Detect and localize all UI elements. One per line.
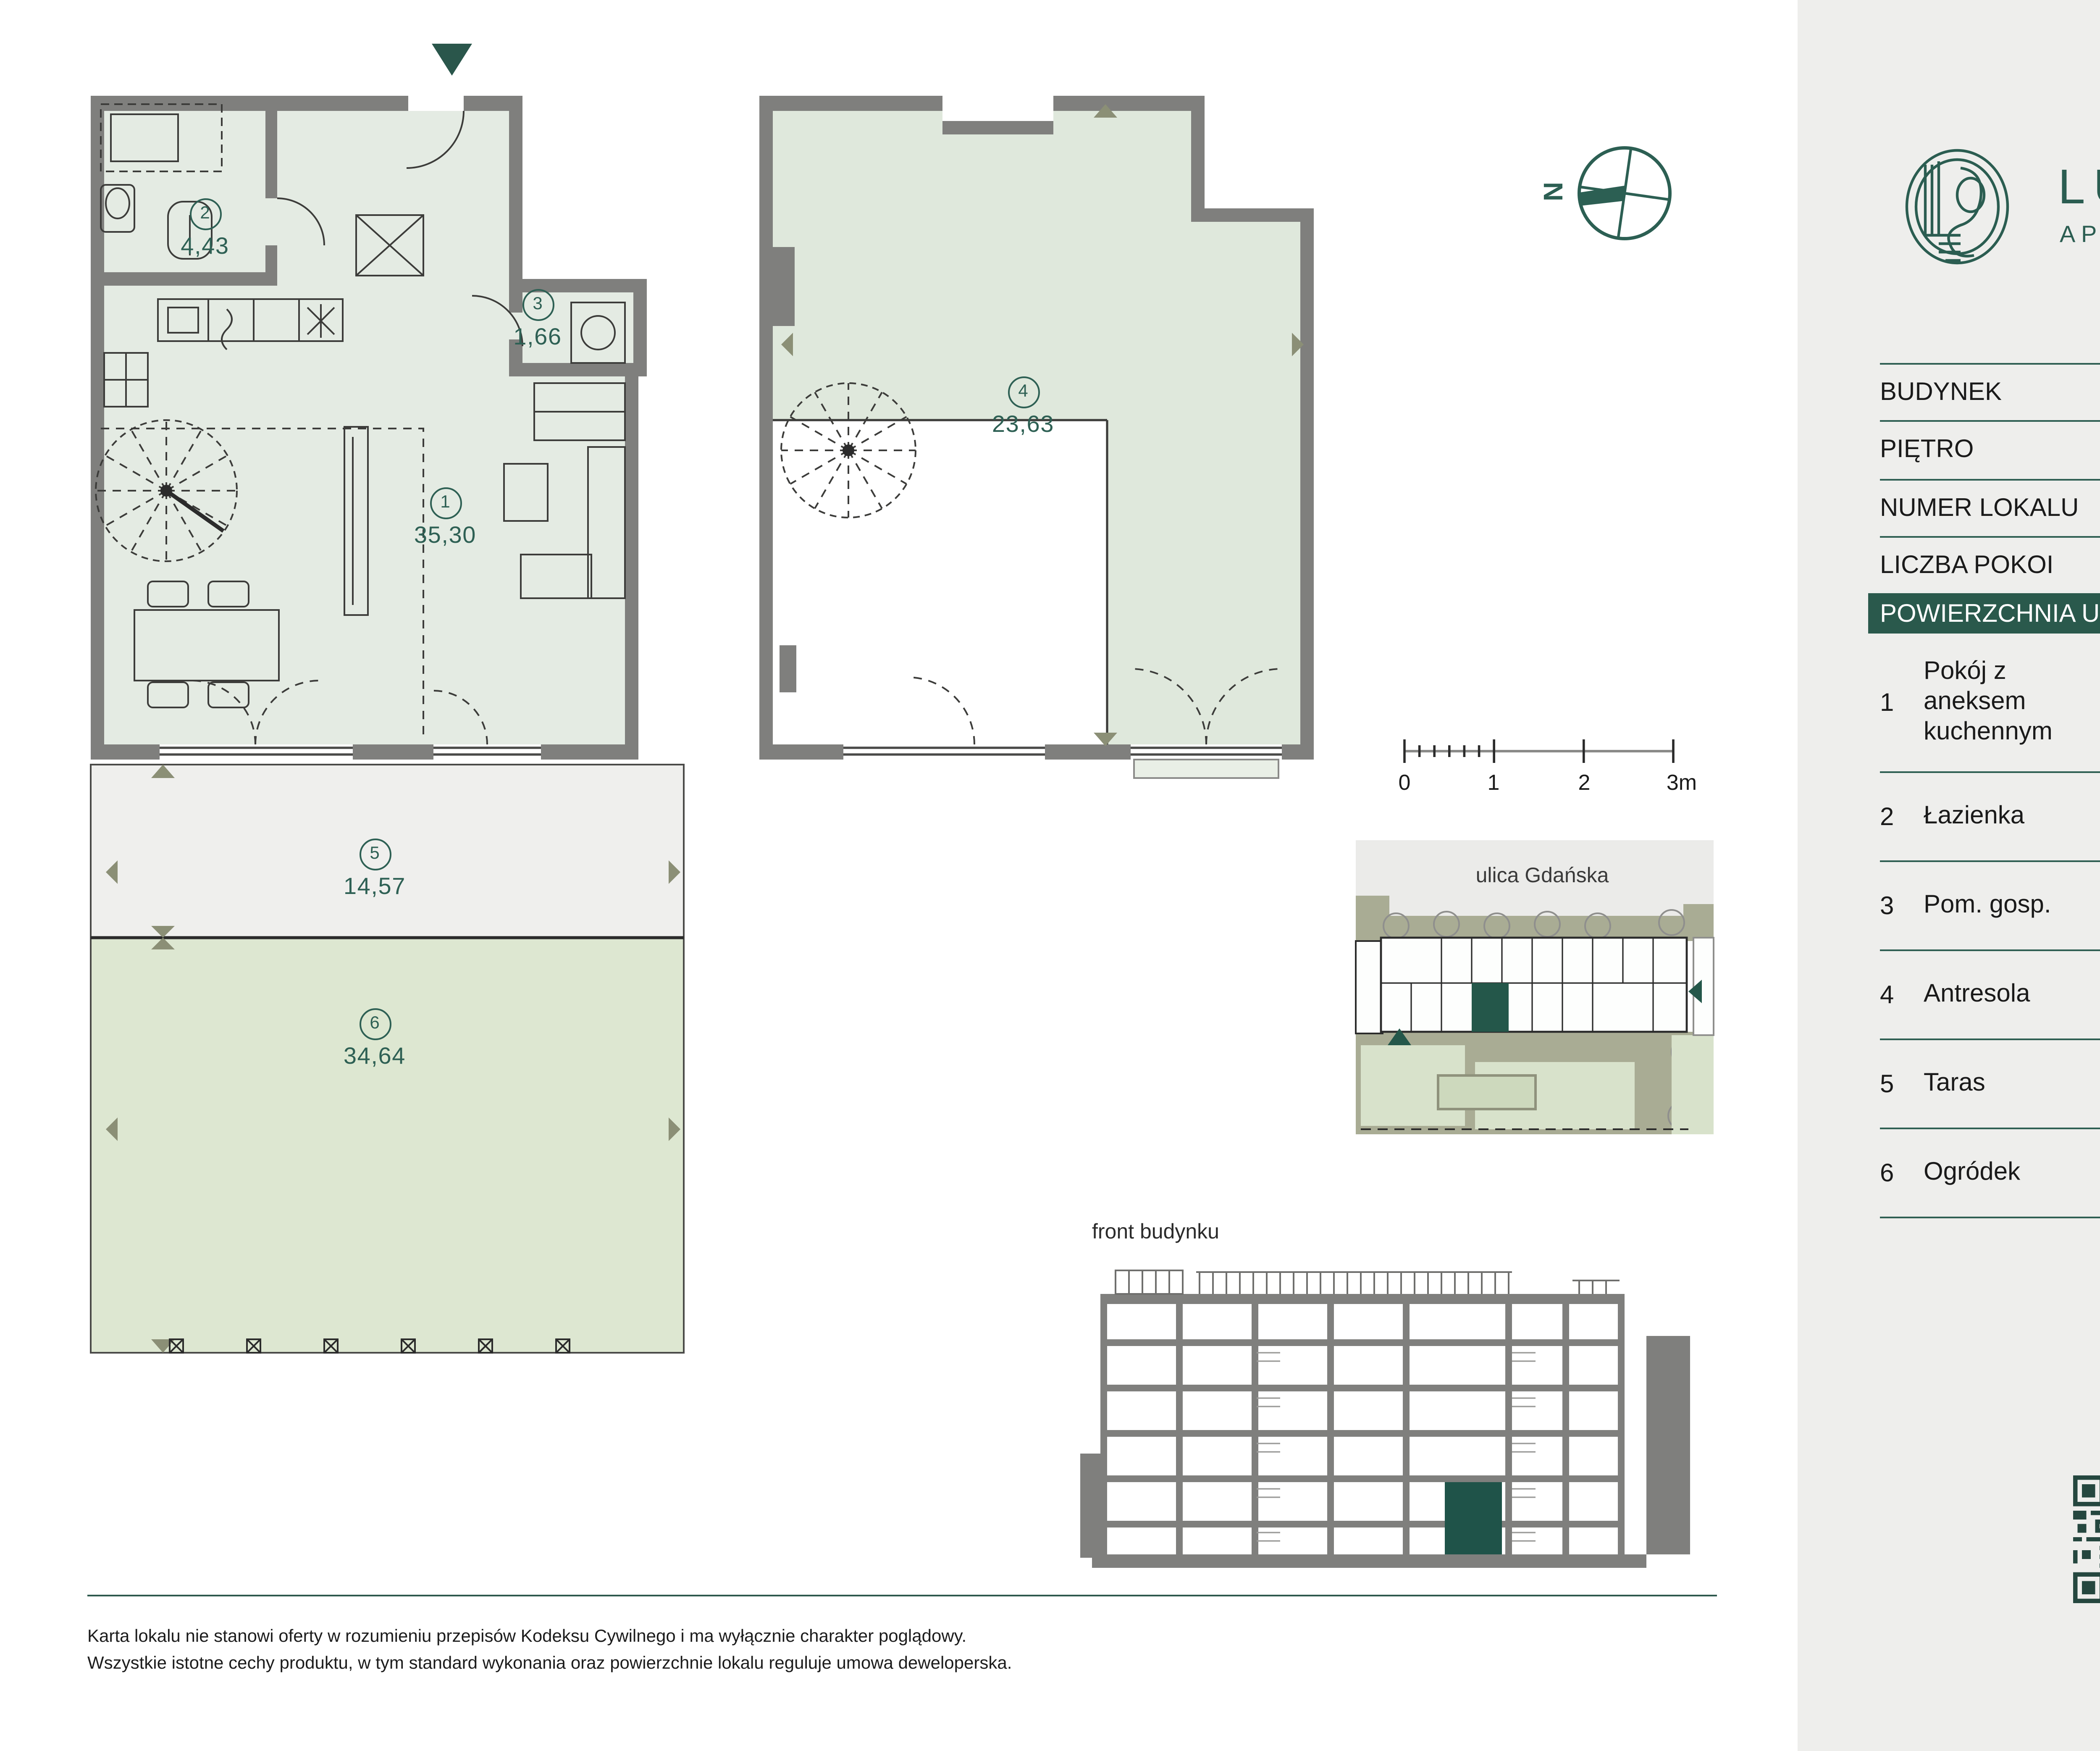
room-label-6: 6 34,64 [299,1007,450,1069]
usable-area-label: POWIERZCHNIA UŻYTKOWA [1880,599,2100,628]
info-label: BUDYNEK [1880,379,2002,407]
brand-name: LUXSFERA [2058,161,2100,217]
room-no: 6 [1880,1159,1924,1188]
room-row-2: 2 Łazienka 2,38 x 1,94 4,43 m² [1880,773,2100,862]
disclaimer-line-1: Karta lokalu nie stanowi oferty w rozumi… [87,1625,1012,1651]
info-row-numer-lokalu: NUMER LOKALU A2.0.2 [1880,478,2100,536]
room-label-4: 4 23,63 [948,375,1099,437]
room-no: 4 [1880,981,1924,1010]
info-row-liczba-pokoi: LICZBA POKOI IP + AK + AN [1880,536,2100,594]
info-label: NUMER LOKALU [1880,494,2079,522]
room-name: Łazienka [1924,802,2100,832]
room-name: Pom. gosp. [1924,891,2100,921]
unit-info-table: BUDYNEK A PIĘTRO PARTER NUMER LOKALU A2.… [1880,363,2100,1219]
brand-subtitle: APARTAMENTY [2060,220,2100,247]
disclaimer-line-2: Wszystkie istotne cechy produktu, w tym … [87,1651,1012,1677]
usable-area-highlight: POWIERZCHNIA UŻYTKOWA 65,02 m² [1868,594,2100,634]
room-row-1: 1 Pokój z aneksem kuchennym 6,43 x 7,26 … [1880,634,2100,773]
room-row-5: 5 Taras 6,94 x 2,10 14,57 m² [1880,1041,2100,1130]
room-label-5: 5 14,57 [299,837,450,899]
room-row-6: 6 Ogródek 6,90 x 5,02 34,64 m² [1880,1130,2100,1219]
info-row-pietro: PIĘTRO PARTER [1880,421,2100,478]
elevation-highlighted-unit [1445,1482,1502,1554]
room-name: Antresola [1924,980,2100,1010]
footer-divider [87,1595,1717,1597]
apartment-card: N 0 1 2 3m [0,0,2100,1751]
logo-icon [1903,148,2011,266]
room-name: Ogródek [1924,1158,2100,1188]
room-row-3: 3 Pom. gosp. 1,52 x 1,28 1,66 m² [1880,862,2100,952]
room-label-2: 2 4,43 [129,197,281,259]
disclaimer: Karta lokalu nie stanowi oferty w rozumi… [87,1625,1012,1677]
room-label-1: 1 35,30 [370,486,521,548]
room-row-4: 4 Antresola 6,43 x 7,26 23,63 m² [1880,952,2100,1041]
room-name: Taras [1924,1069,2100,1099]
building-elevation [0,0,1798,1751]
room-no: 2 [1880,803,1924,831]
info-label: PIĘTRO [1880,436,1974,465]
info-label: LICZBA POKOI [1880,551,2054,580]
room-no: 5 [1880,1070,1924,1099]
qr-code [2073,1475,2100,1603]
info-row-budynek: BUDYNEK A [1880,363,2100,421]
room-no: 1 [1880,689,1924,717]
room-label-3: 3 1,66 [462,287,613,350]
room-name: Pokój z aneksem kuchennym [1924,657,2100,748]
room-no: 3 [1880,892,1924,920]
roof-railing [1116,1270,1620,1294]
